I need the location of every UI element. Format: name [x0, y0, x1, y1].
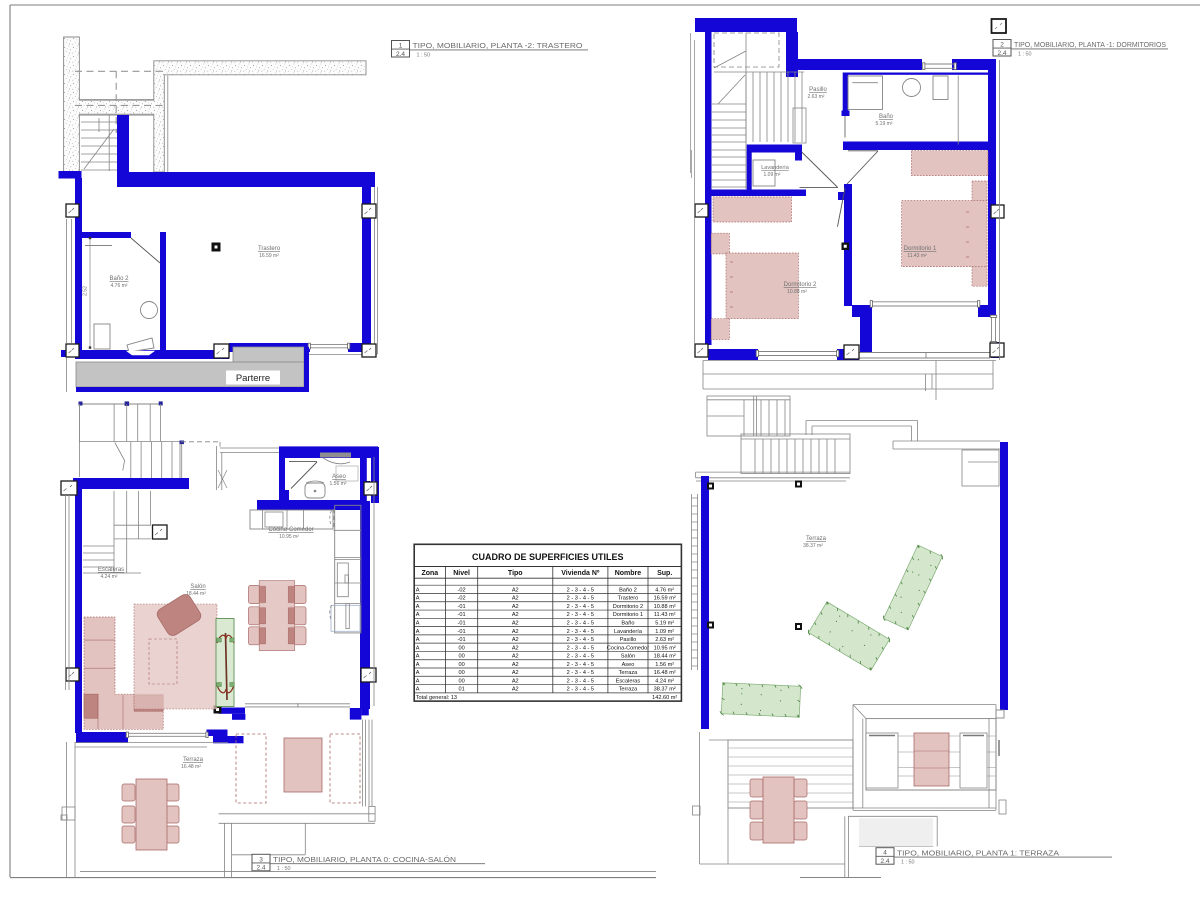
svg-text:Tipo: Tipo [508, 570, 523, 577]
svg-text:2 - 3 - 4 - 5: 2 - 3 - 4 - 5 [567, 654, 594, 660]
svg-text:2 - 3 - 4 - 5: 2 - 3 - 4 - 5 [567, 587, 594, 593]
svg-text:142.60 m²: 142.60 m² [652, 695, 677, 701]
svg-text:1 : 50: 1 : 50 [1018, 51, 1032, 57]
svg-text:Baño: Baño [879, 114, 894, 120]
svg-text:A2: A2 [512, 621, 519, 627]
svg-text:18.44 m²: 18.44 m² [654, 654, 676, 660]
svg-text:16.48 m²: 16.48 m² [654, 670, 676, 676]
svg-text:A: A [416, 587, 420, 593]
svg-text:A: A [416, 612, 420, 618]
svg-text:1.56 m²: 1.56 m² [330, 481, 347, 487]
svg-text:2.52: 2.52 [83, 286, 89, 296]
svg-text:11.43 m²: 11.43 m² [654, 612, 676, 618]
svg-text:Escaleras: Escaleras [98, 567, 124, 573]
svg-text:Parterre: Parterre [236, 373, 270, 384]
svg-text:Dormitorio 2: Dormitorio 2 [784, 282, 817, 288]
svg-text:TIPO, MOBILIARIO, PLANTA -1: D: TIPO, MOBILIARIO, PLANTA -1: DORMITORIOS [1014, 40, 1166, 49]
svg-text:Escaleras: Escaleras [616, 678, 641, 684]
svg-text:Nivel: Nivel [453, 570, 470, 577]
svg-text:-01: -01 [458, 621, 466, 627]
svg-text:Lavandería: Lavandería [614, 629, 643, 635]
svg-text:00: 00 [458, 670, 464, 676]
svg-text:Terraza: Terraza [619, 687, 639, 693]
svg-text:A2: A2 [512, 596, 519, 602]
svg-text:-01: -01 [458, 604, 466, 610]
svg-text:A2: A2 [512, 670, 519, 676]
svg-text:A2: A2 [512, 587, 519, 593]
svg-text:A2: A2 [512, 678, 519, 684]
svg-text:2.63 m²: 2.63 m² [655, 637, 674, 643]
svg-text:Terraza: Terraza [806, 536, 827, 542]
svg-text:1: 1 [399, 43, 403, 50]
svg-text:A2: A2 [512, 654, 519, 660]
svg-text:-02: -02 [458, 596, 466, 602]
svg-text:A2: A2 [512, 645, 519, 651]
svg-text:A: A [416, 687, 420, 693]
svg-text:16.59 m²: 16.59 m² [654, 596, 676, 602]
svg-text:1.56 m²: 1.56 m² [655, 662, 674, 668]
svg-text:Total general: 13: Total general: 13 [416, 695, 457, 701]
svg-text:A: A [416, 662, 420, 668]
svg-text:2 - 3 - 4 - 5: 2 - 3 - 4 - 5 [567, 637, 594, 643]
svg-text:2: 2 [1000, 42, 1004, 49]
svg-text:2 - 3 - 4 - 5: 2 - 3 - 4 - 5 [567, 629, 594, 635]
svg-text:2 - 3 - 4 - 5: 2 - 3 - 4 - 5 [567, 687, 594, 693]
svg-text:Baño 2: Baño 2 [619, 587, 637, 593]
svg-text:Nombre: Nombre [615, 570, 642, 577]
svg-text:A: A [416, 621, 420, 627]
svg-text:4: 4 [883, 850, 887, 857]
svg-text:2.4: 2.4 [256, 865, 265, 872]
svg-text:A: A [416, 645, 420, 651]
svg-text:A2: A2 [512, 612, 519, 618]
svg-text:Vivienda Nº: Vivienda Nº [561, 570, 600, 577]
svg-text:5.19 m²: 5.19 m² [876, 121, 893, 127]
svg-text:1 : 50: 1 : 50 [901, 860, 915, 866]
svg-text:00: 00 [458, 654, 464, 660]
svg-text:01: 01 [458, 687, 464, 693]
svg-text:-02: -02 [458, 587, 466, 593]
svg-text:00: 00 [458, 678, 464, 684]
svg-text:1 : 50: 1 : 50 [417, 52, 431, 58]
svg-text:38.37 m²: 38.37 m² [654, 687, 676, 693]
svg-text:A2: A2 [512, 629, 519, 635]
svg-text:5.19 m²: 5.19 m² [655, 621, 674, 627]
svg-text:A: A [416, 678, 420, 684]
svg-text:Terraza: Terraza [183, 757, 204, 763]
svg-text:2 - 3 - 4 - 5: 2 - 3 - 4 - 5 [567, 645, 594, 651]
svg-text:2 - 3 - 4 - 5: 2 - 3 - 4 - 5 [567, 596, 594, 602]
svg-text:Trastero: Trastero [258, 246, 281, 252]
svg-text:2 - 3 - 4 - 5: 2 - 3 - 4 - 5 [567, 612, 594, 618]
svg-text:A2: A2 [512, 687, 519, 693]
svg-text:1.09 m²: 1.09 m² [655, 629, 674, 635]
svg-text:A2: A2 [512, 637, 519, 643]
svg-text:2 - 3 - 4 - 5: 2 - 3 - 4 - 5 [567, 621, 594, 627]
svg-text:4.24 m²: 4.24 m² [101, 574, 118, 580]
svg-text:-01: -01 [458, 637, 466, 643]
svg-text:Zona: Zona [421, 570, 438, 577]
svg-text:3: 3 [259, 856, 263, 863]
svg-text:CUADRO DE SUPERFICIES UTILES: CUADRO DE SUPERFICIES UTILES [472, 552, 624, 562]
svg-text:1 : 50: 1 : 50 [277, 866, 291, 872]
svg-text:Baño: Baño [621, 621, 634, 627]
svg-text:A: A [416, 596, 420, 602]
svg-text:1.09 m²: 1.09 m² [764, 172, 781, 178]
svg-text:2.63 m²: 2.63 m² [808, 94, 825, 100]
svg-text:A: A [416, 670, 420, 676]
svg-text:A2: A2 [512, 662, 519, 668]
svg-text:11.43 m²: 11.43 m² [907, 253, 927, 259]
svg-text:2 - 3 - 4 - 5: 2 - 3 - 4 - 5 [567, 678, 594, 684]
svg-text:TIPO, MOBILIARIO, PLANTA -2: T: TIPO, MOBILIARIO, PLANTA -2: TRASTERO [413, 41, 583, 50]
svg-text:Sup.: Sup. [657, 570, 672, 577]
svg-text:TIPO, MOBILIARIO, PLANTA 1: TE: TIPO, MOBILIARIO, PLANTA 1: TERRAZA [897, 848, 1060, 857]
svg-text:2 - 3 - 4 - 5: 2 - 3 - 4 - 5 [567, 670, 594, 676]
svg-text:Cocina-Comedor: Cocina-Comedor [268, 527, 313, 533]
svg-text:2 - 3 - 4 - 5: 2 - 3 - 4 - 5 [567, 604, 594, 610]
svg-text:2.4: 2.4 [997, 50, 1006, 57]
svg-text:00: 00 [458, 662, 464, 668]
svg-text:Salón: Salón [621, 654, 635, 660]
svg-text:Baño 2: Baño 2 [109, 276, 129, 282]
svg-text:16.48 m²: 16.48 m² [181, 764, 201, 770]
svg-text:18.44 m²: 18.44 m² [186, 591, 206, 597]
svg-text:Pasillo: Pasillo [620, 637, 636, 643]
svg-text:Terraza: Terraza [619, 670, 639, 676]
svg-text:Aseo: Aseo [622, 662, 635, 668]
svg-text:4.24 m²: 4.24 m² [655, 678, 674, 684]
svg-text:4.76 m²: 4.76 m² [111, 283, 128, 289]
svg-text:10.95 m²: 10.95 m² [279, 534, 299, 540]
svg-text:Dormitorio 1: Dormitorio 1 [613, 612, 643, 618]
svg-text:Lavandería: Lavandería [761, 165, 789, 171]
svg-text:A: A [416, 604, 420, 610]
svg-text:Dormitorio 2: Dormitorio 2 [613, 604, 643, 610]
svg-text:-01: -01 [458, 612, 466, 618]
svg-text:Trastero: Trastero [618, 596, 639, 602]
svg-text:Pasillo: Pasillo [809, 87, 827, 93]
svg-text:A: A [416, 637, 420, 643]
svg-text:Dormitorio 1: Dormitorio 1 [904, 246, 937, 252]
svg-text:10.88 m²: 10.88 m² [787, 289, 807, 295]
svg-text:16.59 m²: 16.59 m² [259, 253, 279, 259]
svg-text:00: 00 [458, 645, 464, 651]
svg-text:38.37 m²: 38.37 m² [803, 543, 823, 549]
svg-text:2.4: 2.4 [396, 51, 405, 58]
svg-text:2.4: 2.4 [880, 858, 889, 865]
svg-text:TIPO, MOBILIARIO, PLANTA 0: CO: TIPO, MOBILIARIO, PLANTA 0: COCINA-SALÓN [273, 855, 456, 864]
svg-text:Salón: Salón [190, 584, 205, 590]
svg-text:4.76 m²: 4.76 m² [655, 587, 674, 593]
svg-text:A: A [416, 654, 420, 660]
svg-text:-01: -01 [458, 629, 466, 635]
svg-text:A: A [416, 629, 420, 635]
svg-text:10.88 m²: 10.88 m² [654, 604, 676, 610]
svg-text:A2: A2 [512, 604, 519, 610]
svg-text:Aseo: Aseo [332, 474, 346, 480]
svg-text:10.95 m²: 10.95 m² [654, 645, 676, 651]
svg-text:2 - 3 - 4 - 5: 2 - 3 - 4 - 5 [567, 662, 594, 668]
svg-text:Cocina-Comedor: Cocina-Comedor [607, 645, 649, 651]
